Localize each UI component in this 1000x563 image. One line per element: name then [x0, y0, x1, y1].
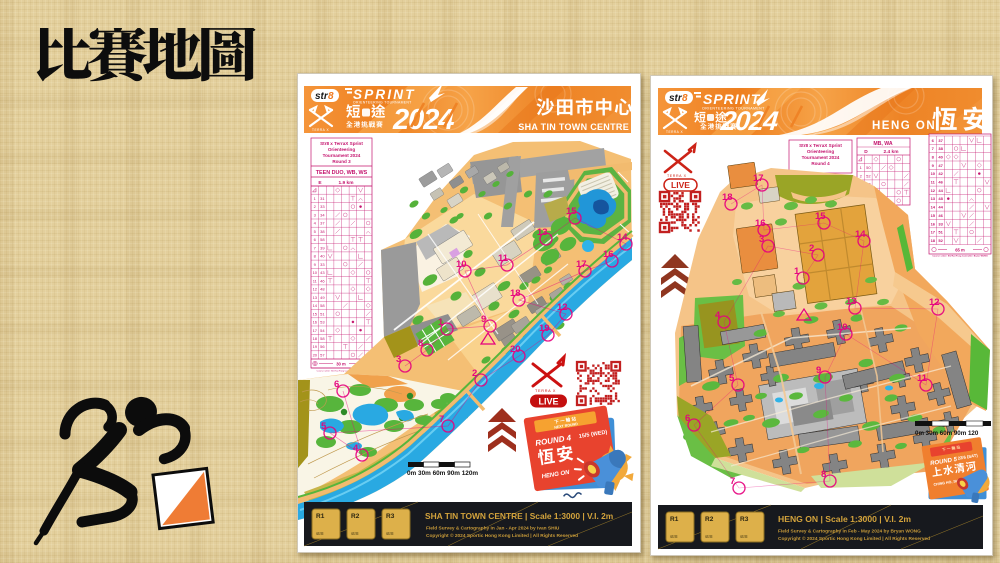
svg-text:2: 2 — [809, 243, 814, 254]
svg-text:15: 15 — [815, 211, 826, 222]
svg-text:R2: R2 — [351, 513, 360, 520]
svg-text:33: 33 — [320, 204, 325, 209]
svg-text:38: 38 — [938, 146, 943, 151]
svg-text:33: 33 — [320, 262, 325, 267]
svg-text:18: 18 — [313, 336, 318, 341]
svg-text:13: 13 — [846, 296, 857, 307]
svg-text:47: 47 — [938, 163, 943, 168]
svg-text:str: str — [315, 91, 329, 102]
svg-text:8: 8 — [821, 469, 826, 480]
svg-text:6: 6 — [685, 413, 690, 424]
svg-text:40: 40 — [320, 254, 325, 259]
svg-text:57: 57 — [320, 353, 325, 358]
svg-text:38: 38 — [320, 229, 325, 234]
svg-text:15: 15 — [566, 206, 577, 217]
svg-text:54: 54 — [320, 328, 325, 333]
svg-text:9: 9 — [481, 314, 486, 325]
svg-text:Round 4: Round 4 — [811, 161, 830, 166]
svg-text:13: 13 — [931, 196, 936, 201]
svg-text:7: 7 — [439, 414, 444, 425]
svg-text:17: 17 — [753, 173, 764, 184]
svg-text:R2: R2 — [705, 516, 714, 523]
svg-text:1: 1 — [794, 266, 800, 277]
svg-text:5: 5 — [729, 373, 735, 384]
svg-text:18: 18 — [931, 238, 936, 243]
svg-text:12: 12 — [929, 297, 940, 308]
svg-text:Copyright © 2024 Sportic Hong: Copyright © 2024 Sportic Hong Kong Limit… — [426, 532, 578, 539]
svg-text:14: 14 — [855, 229, 866, 240]
svg-text:Field Survey & Cartography in: Field Survey & Cartography in Jan - Apr … — [426, 526, 560, 532]
svg-text:SHA TIN TOWN CENTRE | Scale 1:: SHA TIN TOWN CENTRE | Scale 1:3000 | V.I… — [425, 511, 613, 521]
svg-text:2: 2 — [472, 368, 477, 379]
svg-text:1.9 km: 1.9 km — [339, 180, 354, 186]
svg-text:10: 10 — [313, 270, 318, 275]
svg-text:56: 56 — [320, 344, 325, 349]
svg-text:1: 1 — [438, 317, 444, 328]
svg-text:17: 17 — [313, 328, 318, 333]
svg-text:str8: str8 — [705, 534, 713, 539]
svg-text:R1: R1 — [670, 516, 679, 523]
svg-text:2024: 2024 — [392, 104, 454, 136]
svg-text:18: 18 — [722, 192, 733, 203]
svg-text:40: 40 — [938, 155, 943, 160]
svg-text:Copyright © 2024 Sportic Hong: Copyright © 2024 Sportic Hong Kong Limit… — [778, 535, 930, 542]
svg-text:50: 50 — [866, 165, 871, 170]
svg-text:0m 30m 60m 90m 120: 0m 30m 60m 90m 120 — [915, 430, 979, 437]
svg-text:11: 11 — [917, 373, 928, 384]
svg-text:20: 20 — [313, 353, 318, 358]
svg-text:12: 12 — [931, 188, 936, 193]
svg-text:15: 15 — [313, 311, 318, 316]
svg-text:49: 49 — [320, 295, 325, 300]
svg-text:LIVE: LIVE — [671, 180, 690, 190]
svg-text:10: 10 — [931, 171, 936, 176]
svg-text:37: 37 — [320, 221, 325, 226]
svg-text:SHA TIN TOWN CENTRE: SHA TIN TOWN CENTRE — [518, 122, 629, 132]
svg-text:31: 31 — [320, 196, 325, 201]
svg-text:Tournament 2024: Tournament 2024 — [802, 155, 840, 160]
svg-text:TERRA X: TERRA X — [535, 389, 556, 393]
svg-text:65 m: 65 m — [955, 247, 965, 252]
svg-text:16: 16 — [313, 320, 318, 325]
svg-text:str8: str8 — [316, 531, 324, 536]
svg-text:51: 51 — [320, 311, 325, 316]
svg-text:Course setter: SIU Kai Fung C: Course setter: SIU Kai Fung Controller: … — [932, 255, 988, 258]
svg-text:14: 14 — [313, 303, 318, 308]
svg-text:0m 30m 60m 90m 120m: 0m 30m 60m 90m 120m — [407, 470, 478, 477]
svg-text:14: 14 — [931, 205, 936, 210]
svg-text:5: 5 — [321, 421, 327, 432]
svg-text:str8: str8 — [386, 531, 394, 536]
svg-text:str8: str8 — [351, 531, 359, 536]
svg-text:HENG ON: HENG ON — [872, 120, 936, 132]
svg-text:17: 17 — [576, 259, 587, 270]
svg-text:16: 16 — [931, 221, 936, 226]
svg-text:10: 10 — [837, 322, 848, 333]
svg-text:Field Survey & Cartography in: Field Survey & Cartography in Feb - May … — [778, 529, 921, 535]
svg-text:39: 39 — [320, 245, 325, 250]
svg-text:12: 12 — [313, 287, 318, 292]
svg-text:16: 16 — [755, 218, 766, 229]
svg-text:8: 8 — [418, 338, 423, 349]
svg-text:52: 52 — [938, 238, 943, 243]
svg-text:8: 8 — [328, 91, 334, 102]
svg-text:str8: str8 — [740, 534, 748, 539]
svg-text:37: 37 — [938, 138, 943, 143]
svg-text:13: 13 — [313, 295, 318, 300]
svg-text:Str8 x TerraX Sprint: Str8 x TerraX Sprint — [320, 141, 363, 146]
svg-text:Tournament 2024: Tournament 2024 — [323, 153, 361, 158]
svg-text:53: 53 — [320, 320, 325, 325]
svg-text:17: 17 — [931, 230, 936, 235]
svg-text:R3: R3 — [740, 516, 749, 523]
svg-text:30 m: 30 m — [336, 361, 346, 366]
svg-text:18: 18 — [510, 288, 521, 299]
svg-text:HENG ON | Scale 1:3000 | V.I.: HENG ON | Scale 1:3000 | V.I. 2m — [778, 514, 911, 524]
svg-text:2024: 2024 — [719, 105, 780, 136]
svg-text:11: 11 — [498, 253, 509, 264]
svg-text:3: 3 — [396, 354, 401, 365]
svg-text:19: 19 — [313, 344, 318, 349]
svg-text:58: 58 — [320, 303, 325, 308]
svg-text:R1: R1 — [316, 513, 325, 520]
svg-text:MB, WA: MB, WA — [873, 141, 893, 147]
svg-text:44: 44 — [938, 205, 943, 210]
svg-text:16: 16 — [603, 249, 614, 260]
svg-text:TEEN DUO, WB, WS: TEEN DUO, WB, WS — [316, 170, 368, 176]
svg-text:58: 58 — [320, 237, 325, 242]
svg-text:Orienteering: Orienteering — [328, 147, 356, 152]
svg-text:10: 10 — [456, 259, 467, 270]
svg-text:51: 51 — [938, 230, 943, 235]
svg-text:TERRA X: TERRA X — [312, 128, 330, 132]
svg-text:Round 3: Round 3 — [332, 159, 351, 164]
svg-text:34: 34 — [320, 212, 325, 217]
svg-text:str8: str8 — [670, 534, 678, 539]
svg-text:12: 12 — [557, 302, 568, 313]
svg-text:33: 33 — [938, 221, 943, 226]
svg-text:9: 9 — [816, 365, 821, 376]
svg-text:2.4 km: 2.4 km — [884, 149, 899, 155]
svg-text:20: 20 — [510, 344, 521, 355]
svg-text:48: 48 — [938, 196, 943, 201]
svg-text:D: D — [864, 149, 868, 155]
svg-text:6: 6 — [334, 379, 339, 390]
svg-text:19: 19 — [539, 323, 550, 334]
svg-text:42: 42 — [938, 171, 943, 176]
svg-text:44: 44 — [938, 188, 943, 193]
svg-text:46: 46 — [320, 278, 325, 283]
svg-text:TERRA X: TERRA X — [666, 130, 684, 134]
svg-text:52: 52 — [866, 173, 871, 178]
svg-text:13: 13 — [537, 227, 548, 238]
svg-text:15: 15 — [931, 213, 936, 218]
svg-text:46: 46 — [938, 213, 943, 218]
svg-text:48: 48 — [320, 287, 325, 292]
svg-text:R3: R3 — [386, 513, 395, 520]
svg-text:58: 58 — [320, 336, 325, 341]
svg-text:7: 7 — [730, 476, 735, 487]
svg-text:TERRA X: TERRA X — [667, 174, 687, 178]
svg-text:LIVE: LIVE — [538, 397, 558, 407]
svg-text:4: 4 — [353, 443, 359, 454]
svg-text:Str8 x TerraX Sprint: Str8 x TerraX Sprint — [799, 143, 842, 148]
svg-text:Orienteering: Orienteering — [807, 149, 835, 154]
svg-text:8: 8 — [682, 93, 688, 104]
svg-text:4: 4 — [715, 310, 721, 321]
svg-text:46: 46 — [938, 180, 943, 185]
svg-text:43: 43 — [320, 270, 325, 275]
svg-text:14: 14 — [617, 232, 628, 243]
svg-text:str: str — [669, 93, 683, 104]
